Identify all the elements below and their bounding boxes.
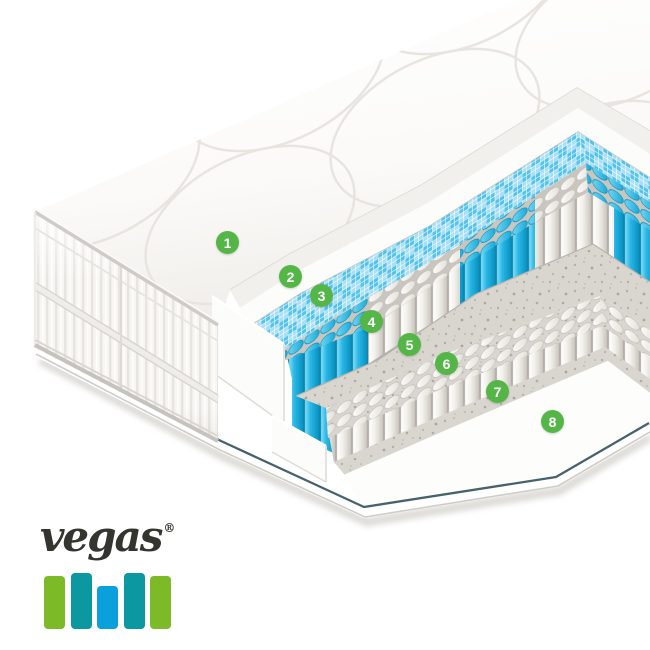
vegas-logo: vegas®	[40, 516, 200, 636]
vegas-wordmark: vegas	[40, 512, 161, 561]
layer-badge-2: 2	[279, 265, 302, 288]
badge-number: 8	[549, 415, 557, 429]
logo-bar-2	[71, 573, 92, 629]
badge-number: 1	[224, 236, 232, 250]
layer-badge-5: 5	[398, 333, 421, 356]
logo-bar-4	[124, 573, 145, 629]
badge-number: 3	[318, 289, 326, 303]
layer-badge-6: 6	[435, 352, 458, 375]
layer-badge-7: 7	[486, 380, 509, 403]
vegas-logo-text: vegas®	[40, 516, 173, 558]
layer-badge-4: 4	[360, 310, 383, 333]
badge-number: 7	[494, 385, 502, 399]
badge-number: 2	[287, 270, 295, 284]
logo-bar-3	[97, 586, 118, 629]
vegas-logo-bars	[44, 573, 171, 629]
badge-number: 6	[443, 357, 451, 371]
logo-bar-1	[44, 576, 65, 629]
registered-mark: ®	[163, 521, 175, 535]
mattress-cutaway-illustration: 1 2 3 4 5 6 7 8 vegas®	[0, 0, 650, 650]
badge-number: 5	[406, 338, 414, 352]
layer-badge-1: 1	[216, 231, 239, 254]
layer-badge-8: 8	[541, 410, 564, 433]
logo-bar-5	[150, 576, 171, 629]
badge-number: 4	[368, 315, 376, 329]
layer-badge-3: 3	[310, 284, 333, 307]
